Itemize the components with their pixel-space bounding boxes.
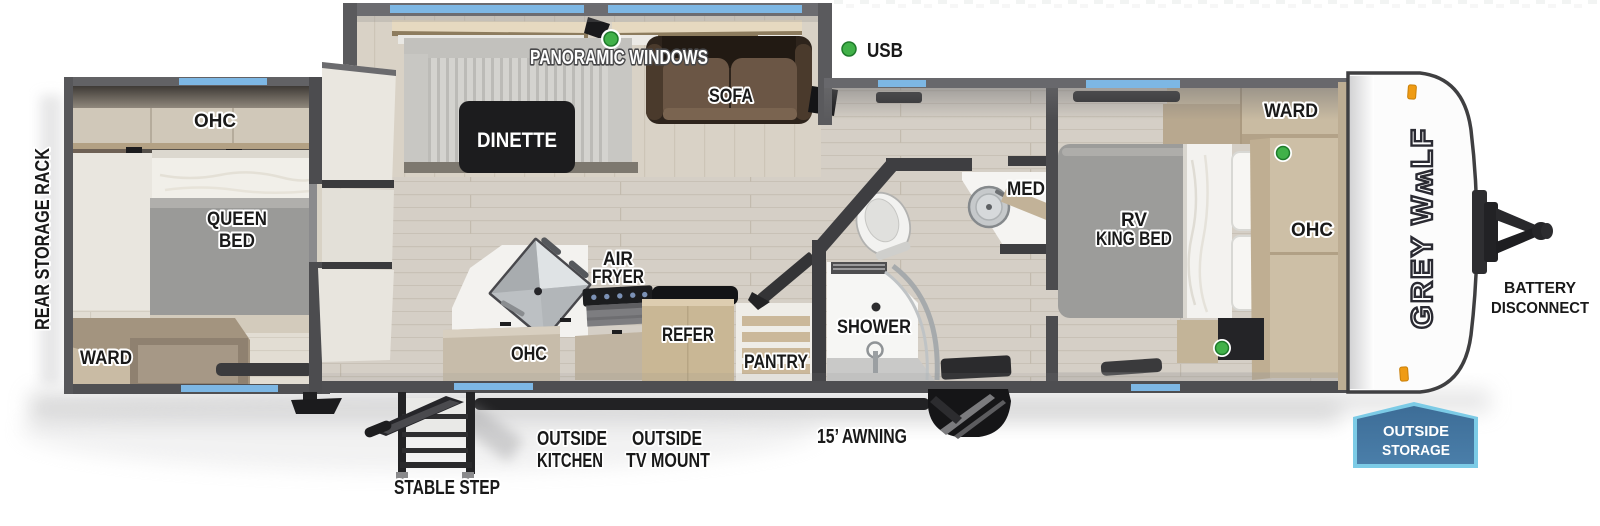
svg-text:OHC: OHC [194,111,236,132]
svg-text:TV MOUNT: TV MOUNT [626,450,710,472]
svg-text:OHC: OHC [1291,220,1333,241]
svg-text:OHC: OHC [511,344,547,365]
svg-text:STORAGE: STORAGE [1382,442,1450,459]
svg-text:USB: USB [867,40,903,62]
svg-text:15’ AWNING: 15’ AWNING [817,426,907,448]
svg-text:DINETTE: DINETTE [477,129,557,152]
svg-text:BED: BED [219,231,255,252]
svg-text:SOFA: SOFA [709,86,753,107]
svg-text:REFER: REFER [662,325,714,346]
svg-text:RV: RV [1121,210,1147,231]
svg-text:WARD: WARD [80,348,132,369]
svg-text:QUEEN: QUEEN [207,209,267,230]
svg-text:WARD: WARD [1264,101,1318,122]
svg-text:GREY WʍLF: GREY WʍLF [1406,127,1439,329]
svg-text:STABLE STEP: STABLE STEP [394,477,500,499]
svg-text:KING BED: KING BED [1096,229,1172,250]
svg-text:OUTSIDE: OUTSIDE [1383,423,1449,440]
svg-text:BATTERY: BATTERY [1504,280,1576,297]
svg-text:REAR STORAGE RACK: REAR STORAGE RACK [32,148,54,330]
svg-text:DISCONNECT: DISCONNECT [1491,300,1589,317]
svg-text:KITCHEN: KITCHEN [537,450,603,472]
svg-text:PANORAMIC WINDOWS: PANORAMIC WINDOWS [530,47,708,69]
svg-text:OUTSIDE: OUTSIDE [632,428,702,450]
svg-text:PANTRY: PANTRY [744,352,808,373]
svg-text:OUTSIDE: OUTSIDE [537,428,607,450]
svg-text:FRYER: FRYER [592,267,644,288]
svg-text:SHOWER: SHOWER [837,317,911,338]
svg-text:MED: MED [1007,179,1045,200]
